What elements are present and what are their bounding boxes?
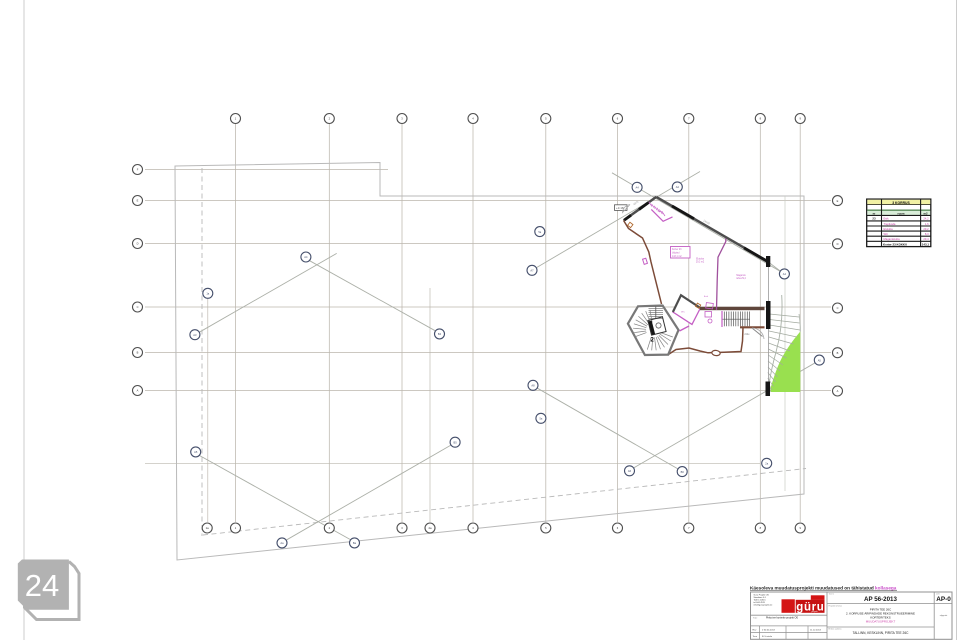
svg-text:B4: B4 <box>438 332 442 336</box>
svg-text:A4: A4 <box>676 185 680 189</box>
svg-text:Käesoleva muudatusprojekti muu: Käesoleva muudatusprojekti muudatused on… <box>750 585 897 590</box>
svg-text:Magamistuba: Magamistuba <box>884 237 901 241</box>
svg-text:B: B <box>837 351 839 355</box>
svg-text:0 30.04.2013: 0 30.04.2013 <box>762 630 776 632</box>
svg-text:B. Uustalu: B. Uustalu <box>762 635 773 638</box>
svg-text:tel 644 4515: tel 644 4515 <box>754 601 766 604</box>
svg-text:Elutuba: Elutuba <box>884 227 894 231</box>
svg-text:23: 23 <box>872 216 876 220</box>
svg-text:güru: güru <box>796 602 824 614</box>
svg-text:A4: A4 <box>783 272 787 276</box>
svg-text:projekt: projekt <box>812 610 818 613</box>
svg-text:1,6: 1,6 <box>925 222 929 226</box>
svg-text:A8: A8 <box>531 384 535 388</box>
svg-text:29,2 m2: 29,2 m2 <box>696 262 705 264</box>
svg-text:Ehitise aadress: Ehitise aadress <box>829 627 842 630</box>
svg-text:3 KORRUS: 3 KORRUS <box>892 201 910 205</box>
svg-text:üldpind: üldpind <box>672 252 680 254</box>
svg-text:D: D <box>137 242 139 246</box>
svg-text:E: E <box>137 199 139 203</box>
svg-text:143,1 m2: 143,1 m2 <box>672 256 682 258</box>
svg-text:24: 24 <box>25 568 59 603</box>
svg-text:E: E <box>837 199 839 203</box>
svg-text:Elutuba: Elutuba <box>696 258 705 261</box>
svg-text:A6: A6 <box>628 469 632 473</box>
svg-text:WC: WC <box>884 232 889 236</box>
svg-text:D: D <box>837 242 839 246</box>
svg-text:Pirita tee korterite projekt O: Pirita tee korterite projekt OÜ <box>766 616 798 619</box>
svg-text:AP-0: AP-0 <box>936 596 951 603</box>
svg-text:MUUDATUSPROJEKT: MUUDATUSPROJEKT <box>866 620 896 624</box>
svg-text:Korter 23 KOKKU: Korter 23 KOKKU <box>883 243 907 247</box>
svg-text:Töö nr: Töö nr <box>829 593 835 596</box>
svg-text:Tase: Tase <box>753 636 758 638</box>
svg-text:Korter 23: Korter 23 <box>672 248 682 251</box>
svg-text:TALLINN, KESKLINN, PIRITA TEE: TALLINN, KESKLINN, PIRITA TEE 26C <box>853 631 909 635</box>
svg-text:Esik: Esik <box>884 216 890 220</box>
svg-text:B: B <box>137 351 139 355</box>
svg-text:24,2: 24,2 <box>923 216 929 220</box>
svg-text:A: A <box>837 389 839 393</box>
svg-text:29,2: 29,2 <box>923 227 929 231</box>
svg-text:29,4: 29,4 <box>923 237 929 241</box>
svg-text:11.12.2013: 11.12.2013 <box>810 630 822 632</box>
svg-text:Magamis: Magamis <box>736 275 746 277</box>
svg-text:A4: A4 <box>636 186 640 190</box>
svg-text:algupärt: algupärt <box>940 614 948 617</box>
svg-text:Töö:: Töö: <box>753 617 758 619</box>
svg-text:Projekti nimetus: Projekti nimetus <box>829 604 843 607</box>
svg-text:B5: B5 <box>454 440 458 444</box>
svg-text:rõdu: rõdu <box>745 333 750 336</box>
svg-text:Staadioni 4-1: Staadioni 4-1 <box>754 596 767 599</box>
svg-text:A4: A4 <box>304 255 308 259</box>
svg-text:8,3: 8,3 <box>925 232 929 236</box>
svg-text:A5: A5 <box>194 450 198 454</box>
svg-text:info@guruprojekt.ee: info@guruprojekt.ee <box>754 604 774 607</box>
svg-text:A7: A7 <box>530 269 534 273</box>
svg-text:B6: B6 <box>681 470 685 474</box>
svg-text:Aa: Aa <box>280 541 284 545</box>
svg-text:C: C <box>837 306 839 310</box>
svg-text:2a: 2a <box>428 526 432 530</box>
svg-text:143,1: 143,1 <box>922 243 930 247</box>
svg-text:Trepikoda: Trepikoda <box>884 222 896 226</box>
svg-text:Guru Projekt OÜ: Guru Projekt OÜ <box>754 593 770 596</box>
svg-text:C: C <box>137 305 139 309</box>
svg-text:+3.18: +3.18 <box>616 206 624 210</box>
svg-text:AP 56-2013: AP 56-2013 <box>864 596 897 603</box>
svg-text:Saun: Saun <box>657 211 663 213</box>
svg-text:WC: WC <box>681 312 685 314</box>
svg-text:tuba 29,4: tuba 29,4 <box>736 277 746 280</box>
svg-text:A5: A5 <box>818 358 822 362</box>
svg-text:A: A <box>137 389 139 393</box>
svg-text:1a: 1a <box>206 526 210 530</box>
svg-text:A3: A3 <box>193 333 197 337</box>
svg-text:Ba: Ba <box>353 541 357 545</box>
